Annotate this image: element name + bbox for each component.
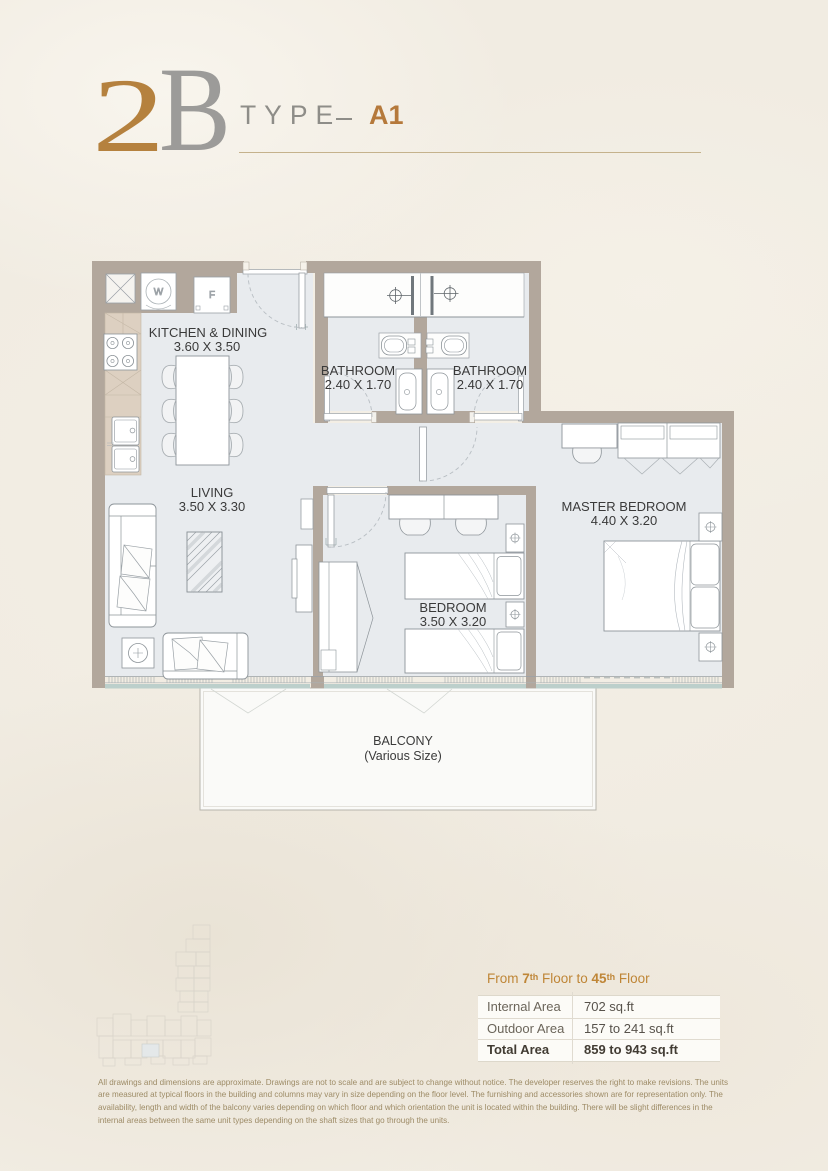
svg-text:W: W xyxy=(154,287,164,298)
svg-text:2.40 X 1.70: 2.40 X 1.70 xyxy=(457,377,524,392)
svg-text:BALCONY: BALCONY xyxy=(373,734,433,748)
svg-text:3.50 X 3.30: 3.50 X 3.30 xyxy=(179,499,246,514)
svg-text:BATHROOM: BATHROOM xyxy=(321,363,395,378)
svg-text:3.60 X 3.50: 3.60 X 3.50 xyxy=(174,339,241,354)
svg-text:2.40 X 1.70: 2.40 X 1.70 xyxy=(325,377,392,392)
svg-text:4.40 X 3.20: 4.40 X 3.20 xyxy=(591,513,658,528)
svg-text:KITCHEN & DINING: KITCHEN & DINING xyxy=(149,325,267,340)
svg-text:F: F xyxy=(209,290,215,301)
svg-text:LIVING: LIVING xyxy=(191,485,234,500)
svg-text:MASTER BEDROOM: MASTER BEDROOM xyxy=(562,499,687,514)
svg-text:BATHROOM: BATHROOM xyxy=(453,363,527,378)
svg-text:(Various Size): (Various Size) xyxy=(364,749,442,763)
svg-text:3.50 X 3.20: 3.50 X 3.20 xyxy=(420,614,487,629)
svg-text:BEDROOM: BEDROOM xyxy=(419,600,486,615)
